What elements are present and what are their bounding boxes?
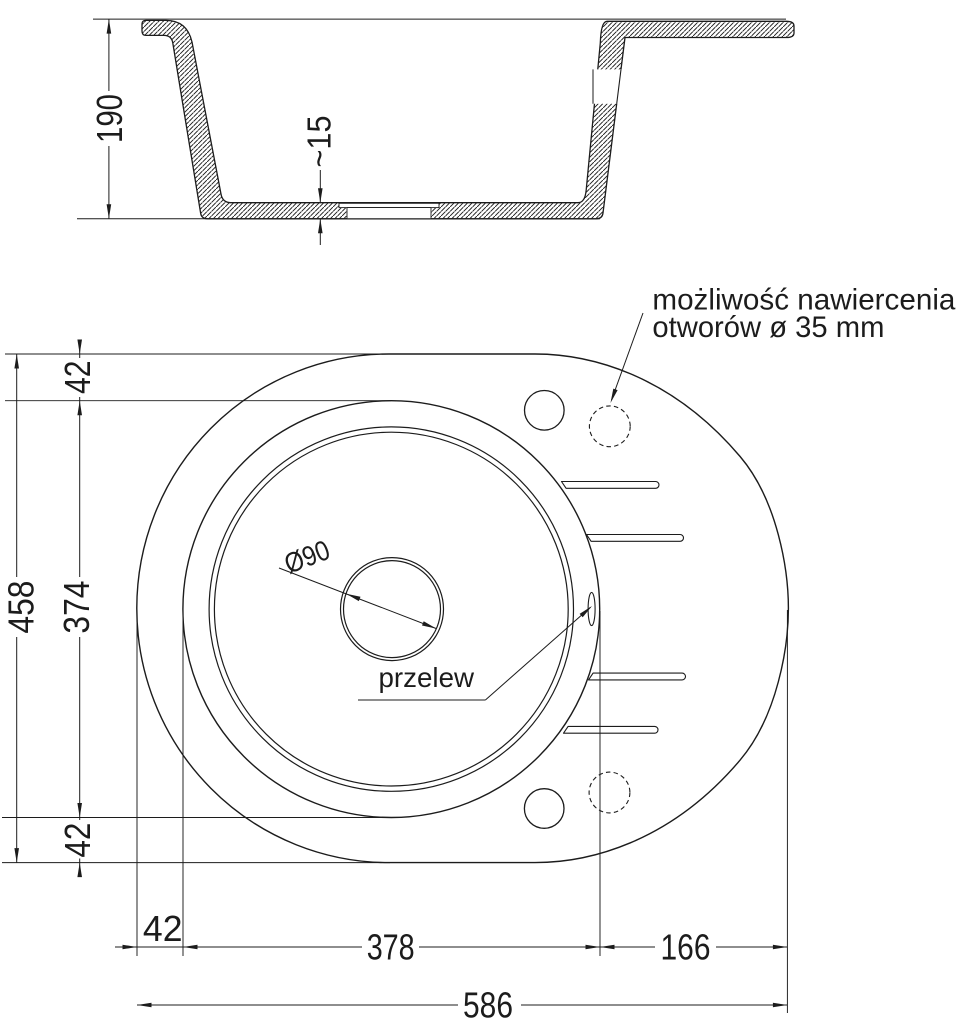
svg-text:166: 166 xyxy=(661,927,711,968)
svg-text:przelew: przelew xyxy=(379,662,475,693)
svg-text:42: 42 xyxy=(57,361,98,395)
svg-text:42: 42 xyxy=(143,908,183,949)
svg-text:42: 42 xyxy=(57,823,98,858)
svg-text:~15: ~15 xyxy=(301,116,338,168)
svg-text:190: 190 xyxy=(89,94,130,143)
svg-text:otworów ø 35 mm: otworów ø 35 mm xyxy=(652,311,884,344)
svg-text:586: 586 xyxy=(463,985,513,1023)
svg-text:458: 458 xyxy=(1,581,42,634)
svg-text:378: 378 xyxy=(367,927,415,968)
svg-text:374: 374 xyxy=(56,581,97,634)
